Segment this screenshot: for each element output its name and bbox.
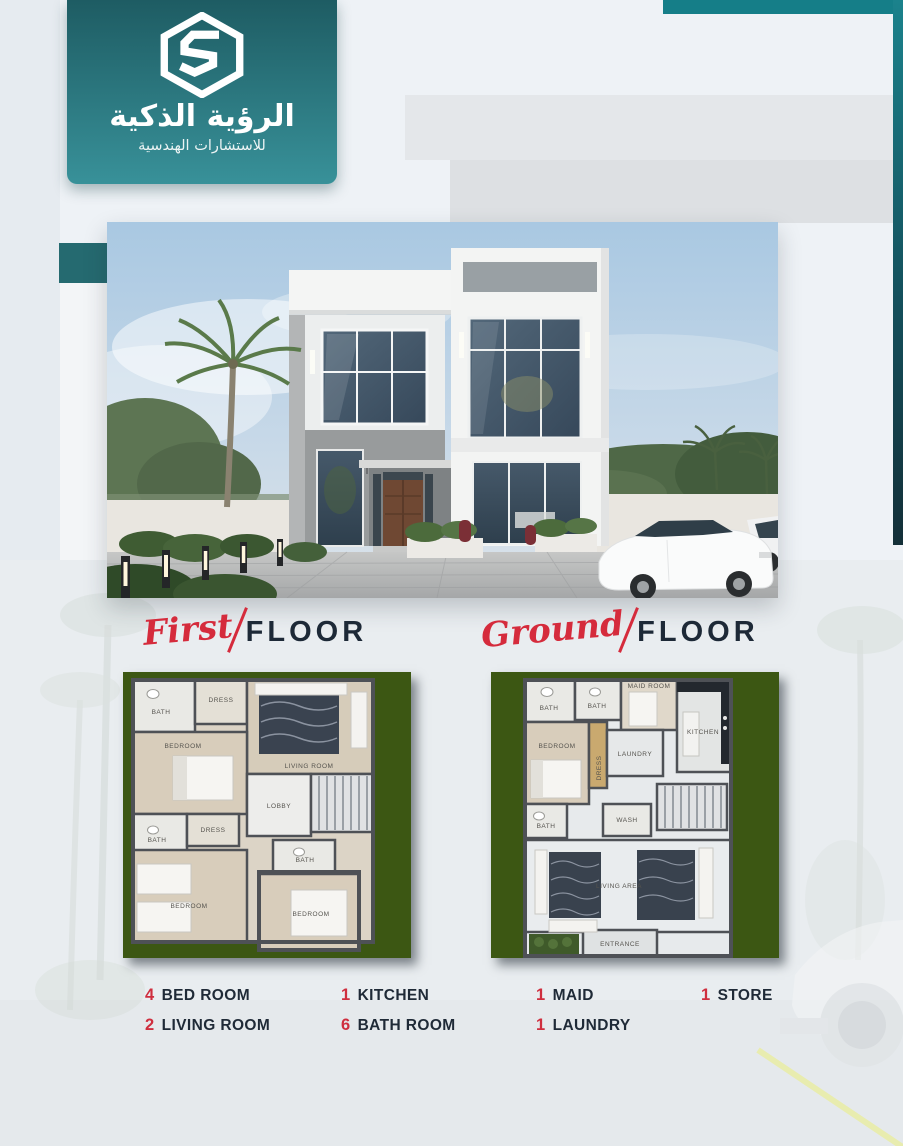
first-floor-label: FLOOR — [246, 616, 368, 649]
ground-floor-plan-panel: BATH BATH MAID ROOM KITCHEN BEDROOM DRES… — [491, 672, 779, 958]
ground-floor-heading: GroundFLOOR — [455, 604, 785, 660]
first-floor-plan: BATH DRESS LIVING ROOM BEDROOM LOBBY BAT… — [123, 672, 411, 958]
hexagon-s-logo-icon — [156, 12, 248, 98]
svg-text:LAUNDRY: LAUNDRY — [618, 751, 653, 758]
right-edge-strip — [893, 0, 903, 545]
logo-title-arabic: الرؤية الذكية — [109, 100, 295, 134]
svg-text:LOBBY: LOBBY — [267, 803, 291, 810]
legend-item-maid: 1MAID — [536, 986, 594, 1005]
brand-logo-badge: الرؤية الذكية للاستشارات الهندسية — [67, 0, 337, 184]
svg-text:ENTRANCE: ENTRANCE — [600, 941, 640, 948]
ground-floor-label: FLOOR — [637, 616, 759, 649]
svg-text:KITCHEN: KITCHEN — [687, 729, 719, 736]
legend-item-kitchen: 1KITCHEN — [341, 986, 429, 1005]
svg-text:DRESS: DRESS — [209, 697, 234, 704]
svg-text:LIVING ROOM: LIVING ROOM — [285, 763, 334, 770]
svg-text:BATH: BATH — [148, 837, 167, 844]
svg-text:DRESS: DRESS — [596, 755, 603, 780]
villa-right-volume — [451, 248, 609, 546]
svg-text:WASH: WASH — [616, 817, 637, 824]
villa-photo — [107, 222, 778, 598]
real-estate-poster: الرؤية الذكية للاستشارات الهندسية — [0, 0, 903, 1146]
legend-item-laundry: 1LAUNDRY — [536, 1016, 631, 1035]
first-floor-heading: FirstFLOOR — [90, 604, 420, 660]
svg-text:MAID ROOM: MAID ROOM — [628, 683, 671, 690]
legend-item-bathrooms: 6BATH ROOM — [341, 1016, 456, 1035]
legend-item-store: 1STORE — [701, 986, 773, 1005]
svg-text:LIVING AREA: LIVING AREA — [596, 883, 642, 890]
svg-text:BATH: BATH — [588, 703, 607, 710]
maroon-vase — [525, 525, 536, 545]
svg-text:BATH: BATH — [296, 857, 315, 864]
svg-text:DRESS: DRESS — [201, 827, 226, 834]
room-legend: 4BED ROOM 1KITCHEN 1MAID 1STORE 2LIVING … — [145, 986, 795, 1046]
teal-accent-square — [59, 243, 107, 283]
svg-text:BEDROOM: BEDROOM — [170, 903, 207, 910]
top-teal-bar — [663, 0, 903, 14]
svg-text:BEDROOM: BEDROOM — [164, 743, 201, 750]
legend-item-living-rooms: 2LIVING ROOM — [145, 1016, 270, 1035]
first-floor-plan-panel: BATH DRESS LIVING ROOM BEDROOM LOBBY BAT… — [123, 672, 411, 958]
first-script-word: First — [141, 606, 234, 654]
svg-text:BEDROOM: BEDROOM — [538, 743, 575, 750]
legend-item-bedrooms: 4BED ROOM — [145, 986, 250, 1005]
ground-script-word: Ground — [480, 604, 626, 656]
logo-subtitle-arabic: للاستشارات الهندسية — [138, 136, 266, 156]
svg-text:BATH: BATH — [152, 709, 171, 716]
svg-text:BEDROOM: BEDROOM — [292, 911, 329, 918]
svg-text:BATH: BATH — [540, 705, 559, 712]
ground-floor-plan: BATH BATH MAID ROOM KITCHEN BEDROOM DRES… — [491, 672, 779, 958]
maroon-vase — [459, 520, 471, 542]
svg-text:BATH: BATH — [537, 823, 556, 830]
